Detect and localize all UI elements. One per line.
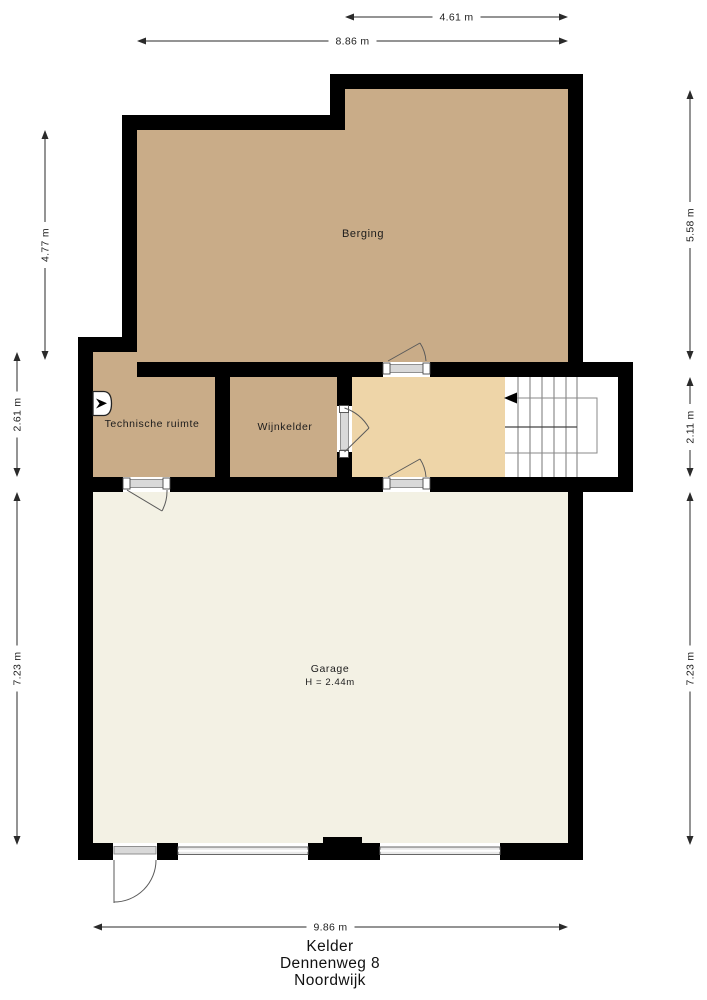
dim-arrow-left (137, 38, 146, 45)
dim-left-lower: 7.23 m (11, 492, 24, 845)
wall-tech-wijn-divider (215, 377, 230, 477)
wall-top-step (330, 74, 345, 130)
floor-plan-page: Berging Technische ruimte Wijnkelder Gar… (0, 0, 707, 1000)
window-bottom-left (178, 847, 308, 855)
floor-plan: Berging Technische ruimte Wijnkelder Gar… (0, 0, 707, 1000)
footer-address: Dennenweg 8 (280, 955, 380, 972)
dim-label: 2.61 m (12, 398, 24, 432)
room-label-technische-ruimte: Technische ruimte (105, 418, 200, 430)
dim-right-lower: 7.23 m (684, 492, 697, 845)
dim-top-partial: 4.61 m (345, 11, 568, 24)
dim-arrow-down (42, 351, 49, 360)
wall-berging-bottom (137, 362, 583, 377)
wall-bottom-bump (323, 837, 362, 845)
dim-top-full: 8.86 m (137, 35, 568, 48)
dim-label: 4.61 m (440, 12, 474, 24)
dim-label: 9.86 m (314, 922, 348, 934)
dim-arrow-up (687, 492, 694, 501)
dim-bottom: 9.86 m (93, 921, 568, 934)
dim-arrow-down (687, 351, 694, 360)
footer-floor-name: Kelder (306, 938, 353, 955)
dim-label: 4.77 m (40, 228, 52, 262)
hallway-floor (352, 377, 505, 477)
room-label-garage-height: H = 2.44m (305, 677, 355, 688)
dim-arrow-up (42, 130, 49, 139)
dim-arrow-right (559, 14, 568, 21)
dim-label: 5.58 m (685, 208, 697, 242)
dim-arrow-right (559, 38, 568, 45)
dim-arrow-down (687, 836, 694, 845)
dim-arrow-up (687, 377, 694, 386)
wall-right-upper (568, 74, 583, 377)
wall-garage-top (93, 477, 618, 492)
dim-arrow-right (559, 924, 568, 931)
wall-left-outer (78, 337, 93, 860)
dim-arrow-down (14, 468, 21, 477)
footer-city: Noordwijk (294, 972, 366, 989)
dim-arrow-down (687, 468, 694, 477)
dim-left-middle: 2.61 m (11, 352, 24, 477)
dim-arrow-left (345, 14, 354, 21)
dim-arrow-left (93, 924, 102, 931)
dim-arrow-up (14, 492, 21, 501)
dim-arrow-up (687, 90, 694, 99)
door-swing-arc (114, 860, 156, 902)
dim-arrow-down (14, 836, 21, 845)
room-floors (93, 89, 618, 843)
dim-right-upper: 5.58 m (684, 90, 697, 360)
room-label-wijnkelder: Wijnkelder (257, 421, 312, 433)
dim-label: 2.11 m (685, 410, 697, 443)
wall-garage-right (568, 477, 583, 860)
dim-label: 7.23 m (12, 652, 24, 686)
footer-caption: Kelder Dennenweg 8 Noordwijk (280, 938, 380, 989)
wall-berging-left (122, 115, 137, 352)
room-label-berging: Berging (342, 228, 384, 240)
window-bottom-right (380, 847, 500, 855)
dim-arrow-up (14, 352, 21, 361)
dim-label: 7.23 m (685, 652, 697, 686)
room-label-garage: Garage (311, 663, 350, 675)
wall-stair-right (618, 362, 633, 492)
boiler-icon (93, 392, 112, 416)
dim-left-upper: 4.77 m (39, 130, 52, 360)
dim-right-middle: 2.11 m (684, 377, 697, 477)
dim-label: 8.86 m (336, 36, 370, 48)
wall-top-upper (330, 74, 583, 89)
wall-top-lower (122, 115, 345, 130)
